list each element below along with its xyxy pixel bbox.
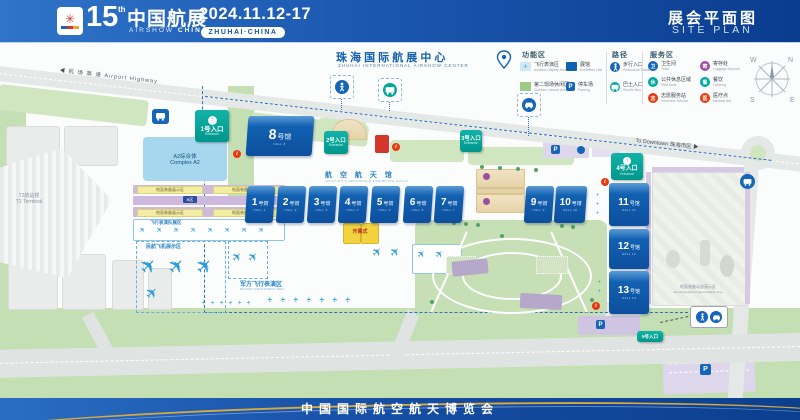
- hall-number: 11: [618, 198, 629, 208]
- jet-icon: ✈: [280, 297, 287, 303]
- tree-icon: [571, 225, 575, 229]
- grandstand-strip: [652, 167, 744, 172]
- walk-icon: [696, 311, 708, 323]
- parking-icon: P: [551, 145, 560, 154]
- hall-7: 7号馆HALL 7: [434, 186, 465, 223]
- hall-number: 3: [313, 198, 319, 208]
- hall-sub: HALL 1: [253, 208, 266, 212]
- grandstand-strip: [745, 172, 750, 304]
- jet-icon: ✈: [332, 297, 339, 303]
- rest-area-icon: 休: [648, 77, 658, 87]
- icon-connector: [389, 101, 390, 111]
- legend-label-en: Aviation Display Area: [534, 68, 567, 72]
- legend-label-en: Rest Area: [661, 83, 691, 87]
- legend-label: 志愿服务站Volunteer Service: [661, 93, 688, 103]
- legend-label-en: Shuttle Bus: [623, 88, 643, 92]
- demo-prop: [666, 250, 680, 268]
- car-route-box: [517, 93, 541, 117]
- hall-suffix: 号馆: [416, 200, 427, 207]
- legend-label-en: Medical Aid: [713, 99, 731, 103]
- t2-terminal-label: T2航站楼 T2 Terminal: [16, 192, 42, 205]
- hall-suffix: 号馆: [630, 288, 640, 295]
- park-stage: [520, 293, 563, 310]
- hall-suffix: 号馆: [630, 244, 640, 251]
- hall-2: 2号馆HALL 2: [276, 186, 307, 223]
- car-icon: [522, 98, 536, 112]
- legend-item-deposit: 寄 寄存处Luggage Deposit: [700, 61, 739, 71]
- hall-sub: HALL 9: [532, 208, 545, 212]
- hall-suffix: 号馆: [351, 200, 362, 207]
- tree-icon: [516, 167, 520, 171]
- legend-item-toilet: 卫 卫生间Toilet: [648, 61, 676, 71]
- hall-number: 5: [376, 198, 382, 208]
- jet-icon: ✈: [248, 300, 253, 304]
- edition-suffix: th: [118, 5, 126, 14]
- plane-mark-icon: ✈: [596, 211, 599, 215]
- legend-item-aviation-display: ✈ 飞行表演区Aviation Display Area: [520, 62, 567, 72]
- legend-label-en: Outdoor Leisure Area: [534, 88, 569, 92]
- parking-icon: P: [700, 364, 711, 375]
- t2-label-cn: T2航站楼: [16, 192, 42, 199]
- hall-number: 8: [268, 127, 277, 141]
- legend-routes-title: 路径: [612, 50, 628, 60]
- volunteer-icon: 志: [648, 93, 658, 103]
- hall-9: 9号馆HALL 9: [524, 186, 555, 223]
- legend-item-shuttle-bus: 巴士入口Shuttle Bus: [610, 82, 643, 92]
- compass-n: N: [788, 57, 793, 64]
- hall-number: 9: [530, 198, 536, 208]
- compass-w: W: [750, 57, 757, 64]
- hall-5: 5号馆HALL 5: [370, 186, 401, 223]
- bus-icon: [610, 82, 620, 92]
- shuttle-stop-icon: [152, 109, 169, 124]
- hall-number: 12: [618, 242, 629, 252]
- hall-suffix: 号馆: [289, 200, 300, 207]
- zone-b-tag: B区: [183, 196, 197, 203]
- hall-label: 10号馆: [559, 198, 582, 208]
- demo-prop: [720, 255, 734, 277]
- toilet-icon: 卫: [648, 61, 658, 71]
- car-icon: [710, 311, 722, 323]
- icon-connector: [341, 98, 342, 110]
- tree-icon: [500, 234, 504, 238]
- bottom-banner: 中国国际航空航天博览会: [0, 398, 800, 420]
- hall-label: 11号馆: [618, 198, 640, 208]
- tree-icon: [480, 165, 484, 169]
- hall-label: 9号馆: [530, 198, 547, 208]
- hall-sub: HALL 5: [378, 208, 391, 212]
- event-location: ZHUHAI·CHINA: [201, 27, 285, 38]
- legend-separator: [606, 52, 607, 104]
- hall-label: 1号馆: [251, 198, 268, 208]
- legend-label-en: Exhibition Hall: [580, 68, 602, 72]
- jet-icon: ✈: [319, 297, 326, 303]
- hall-label: 8号馆: [268, 127, 292, 142]
- tree-icon: [464, 222, 468, 226]
- red-pavilion: [375, 135, 389, 153]
- legend-label: 医疗点Medical Aid: [713, 93, 731, 103]
- complex-a2-label-en: Complex A2: [170, 160, 200, 166]
- walk-icon: [335, 80, 349, 94]
- aviation-display-swatch: ✈: [520, 62, 531, 71]
- bus-stop-icon: [740, 174, 755, 189]
- hall-6: 6号馆HALL 6: [403, 186, 434, 223]
- entrance-label: 5号入口: [642, 334, 658, 339]
- demo-prop: [700, 240, 710, 266]
- info-icon: i: [601, 178, 609, 186]
- legend-item-rest-area: 休 公共休息区域Rest Area: [648, 77, 691, 87]
- hall-suffix: 号馆: [630, 200, 640, 207]
- jet-icon: ✈: [293, 297, 300, 303]
- hall-1: 1号馆HALL 1: [245, 186, 276, 223]
- ground-equipment-chip: 地面装备展示区: [137, 186, 203, 194]
- t2-label-en: T2 Terminal: [16, 199, 42, 205]
- hall-3: 3号馆HALL 3: [307, 186, 338, 223]
- outdoor-leisure-swatch: [520, 82, 531, 91]
- hall-8: 8号馆 HALL 8: [246, 116, 315, 156]
- ground-equipment-chip: 地面装备展示区: [137, 209, 203, 217]
- airshow-en-light: AIRSHOW: [129, 27, 174, 34]
- hall-number: 6: [409, 198, 415, 208]
- bus-route-box: [378, 78, 402, 102]
- hall-sub: HALL 13: [622, 296, 636, 300]
- hall-suffix: 号馆: [383, 200, 394, 207]
- demo-area-label-en: Ground Equipment Demonstration Area: [652, 290, 744, 294]
- compass-rose-icon: W N E S: [744, 48, 800, 108]
- airshow-title-en: AIRSHOW CHINA: [129, 27, 208, 34]
- legend-label: 展馆Exhibition Hall: [580, 62, 602, 72]
- tree-icon: [534, 168, 538, 172]
- military-zone-sub: MILITARY FLIGHT DISPLAY AREA: [240, 287, 284, 291]
- hall-4: 4号馆HALL 4: [338, 186, 369, 223]
- jet-icon: ✈: [306, 297, 313, 303]
- legend-item-volunteer: 志 志愿服务站Volunteer Service: [648, 93, 688, 103]
- jet-icon: ✈: [345, 297, 352, 303]
- opening-ceremony-label: 开幕式: [340, 228, 380, 236]
- hall-sub: HALL 6: [411, 208, 424, 212]
- legend-label: 巴士入口Shuttle Bus: [623, 82, 643, 92]
- expo-full-title: 中国国际航空航天博览会: [0, 398, 800, 420]
- hall-label: 4号馆: [344, 198, 361, 208]
- hall-suffix: 号馆: [277, 132, 292, 142]
- site-plan-title-en: SITE PLAN: [672, 24, 753, 36]
- legend-label: 飞行表演区Aviation Display Area: [534, 62, 567, 72]
- deposit-icon: 寄: [700, 61, 710, 71]
- walk-icon: [610, 62, 620, 72]
- hall-sub: HALL 2: [284, 208, 297, 212]
- hall-sub: HALL 12: [622, 252, 636, 256]
- jet-icon: ✈: [212, 300, 217, 304]
- legend-label: 卫生间Toilet: [661, 61, 676, 71]
- up-arrow-icon: ↑: [208, 116, 217, 125]
- pedestrian-route-box: [330, 75, 354, 99]
- shuttle-dot-icon: [577, 146, 585, 154]
- exit-modes-box: [690, 306, 728, 328]
- complex-a2-label-cn: A2综合体: [173, 152, 196, 160]
- info-icon: i: [392, 143, 400, 151]
- exhibition-hall-swatch: [566, 62, 577, 71]
- compass-s: S: [750, 97, 755, 104]
- top-banner: ✳ 15 th 中国航展 AIRSHOW CHINA 2024.11.12-17…: [0, 0, 800, 43]
- entrance-sub: Entrance: [205, 133, 219, 137]
- hall-12: 12号馆HALL 12: [609, 229, 649, 269]
- legend-label: 第二现场休闲区Outdoor Leisure Area: [534, 82, 569, 92]
- hall-label: 13号馆: [618, 286, 640, 296]
- complex-a2-building: A2综合体 Complex A2: [143, 137, 227, 181]
- legend-item-outdoor-leisure: 第二现场休闲区Outdoor Leisure Area: [520, 82, 569, 92]
- plane-mark-icon: ✈: [598, 280, 601, 284]
- dining-icon: [483, 173, 490, 180]
- jet-icon: ✈: [267, 297, 274, 303]
- up-arrow-icon: ↑: [623, 157, 631, 165]
- legend-item-exhibition-hall: 展馆Exhibition Hall: [566, 62, 602, 72]
- park-plaza: [536, 256, 568, 274]
- legend-label: 停车场Parking: [578, 82, 593, 92]
- parking-icon: P: [596, 320, 605, 329]
- hall-sub: HALL 11: [622, 208, 636, 212]
- hall-number: 1: [251, 198, 257, 208]
- hall-number: 13: [618, 286, 629, 296]
- airshow-site-plan: ◀ 机 场 高 速 Airport Highway To Downtown 珠海…: [0, 0, 800, 420]
- location-pin-icon: [496, 50, 512, 70]
- entrance-3: 3号入口 Entrance: [460, 130, 482, 152]
- legend-label-en: Volunteer Service: [661, 99, 688, 103]
- halls-title-en: AVIATION & AEROSPACE EXHIBITION HALLS: [326, 179, 408, 183]
- entrance-2: 2号入口 Entrance: [324, 131, 348, 154]
- jet-icon: ✈: [221, 300, 226, 304]
- logo-stripes: [61, 26, 79, 29]
- hall-suffix: 号馆: [447, 200, 458, 207]
- logo-glyph: ✳: [65, 13, 75, 25]
- legend-label-en: Toilet: [661, 67, 676, 71]
- hall-label: 6号馆: [409, 198, 426, 208]
- entrance-4: ↑ 4号入口 Entrance: [611, 153, 643, 180]
- hall-suffix: 号馆: [258, 200, 269, 207]
- hall-number: 4: [344, 198, 350, 208]
- hall-sub: HALL 7: [442, 208, 455, 212]
- medical-icon: 医: [700, 93, 710, 103]
- legend-services-title: 服务区: [650, 50, 674, 60]
- hall-number: 10: [559, 198, 571, 208]
- plane-mark-icon: ✈: [598, 289, 601, 293]
- hall-suffix: 号馆: [320, 200, 331, 207]
- entrance-sub: Entrance: [464, 142, 478, 146]
- hall-label: 2号馆: [282, 198, 299, 208]
- jet-icon: ✈: [230, 300, 235, 304]
- plane-mark-icon: ✈: [596, 202, 599, 206]
- info-icon: i: [233, 150, 241, 158]
- hall-sub: HALL 8: [273, 142, 286, 146]
- info-icon: i: [592, 302, 600, 310]
- plane-mark-icon: ✈: [596, 193, 599, 197]
- legend-functional-title: 功能区: [522, 50, 546, 60]
- tree-icon: [498, 166, 502, 170]
- legend-label: 餐饮Catering: [713, 77, 726, 87]
- entrance-1: ↑ 1号入口 Entrance: [195, 110, 229, 142]
- entrance-sub: Entrance: [620, 173, 634, 177]
- compass-e: E: [790, 97, 795, 104]
- bus-icon: [383, 83, 397, 97]
- jet-icon: ✈: [203, 300, 208, 304]
- tree-icon: [430, 300, 434, 304]
- legend-label-en: Luggage Deposit: [713, 67, 739, 71]
- hall-13: 13号馆HALL 13: [609, 271, 649, 314]
- hall-sub: HALL 3: [315, 208, 328, 212]
- parking-garage: [578, 316, 640, 335]
- legend-separator: [642, 52, 643, 104]
- legend-label: 公共休息区域Rest Area: [661, 77, 691, 87]
- hall-number: 2: [282, 198, 288, 208]
- hall-11: 11号馆HALL 11: [609, 183, 649, 226]
- civil-aircraft-label: 民航飞机展示区: [146, 243, 181, 250]
- legend-label: 寄存处Luggage Deposit: [713, 61, 739, 71]
- legend-label-en: Catering: [713, 83, 726, 87]
- edition-number: 15: [86, 3, 118, 32]
- hall-label: 3号馆: [313, 198, 330, 208]
- jet-icon: ✈: [239, 300, 244, 304]
- aerobatic-team-label: 飞行表演队展区: [150, 220, 182, 226]
- legend-item-medical: 医 医疗点Medical Aid: [700, 93, 731, 103]
- airshow-logo-icon: ✳: [57, 7, 83, 35]
- hall-label: 5号馆: [376, 198, 393, 208]
- hall-suffix: 号馆: [571, 200, 582, 207]
- legend-label-en: Parking: [578, 88, 593, 92]
- legend-item-parking: P 停车场Parking: [566, 82, 593, 92]
- roundabout: [741, 136, 775, 170]
- tree-icon: [560, 224, 564, 228]
- hall-suffix: 号馆: [537, 200, 548, 207]
- hall-label: 12号馆: [618, 242, 640, 252]
- legend-item-catering: 餐 餐饮Catering: [700, 77, 726, 87]
- catering-icon: 餐: [700, 77, 710, 87]
- entrance-sub: Entrance: [329, 144, 343, 148]
- hall-label: 7号馆: [440, 198, 457, 208]
- hall-number: 7: [440, 198, 446, 208]
- event-dates: 2024.11.12-17: [199, 5, 311, 24]
- tree-icon: [476, 223, 480, 227]
- parking-icon: P: [566, 82, 575, 91]
- venue-title-en: ZHUHAI INTERNATIONAL AIRSHOW CENTER: [338, 63, 469, 68]
- icon-connector: [528, 116, 529, 136]
- hall-10: 10号馆HALL 10: [554, 186, 588, 223]
- dining-icon: [483, 198, 490, 205]
- hall-sub: HALL 10: [563, 208, 578, 212]
- entrance-5: 5号入口: [637, 331, 663, 342]
- hall-sub: HALL 4: [346, 208, 359, 212]
